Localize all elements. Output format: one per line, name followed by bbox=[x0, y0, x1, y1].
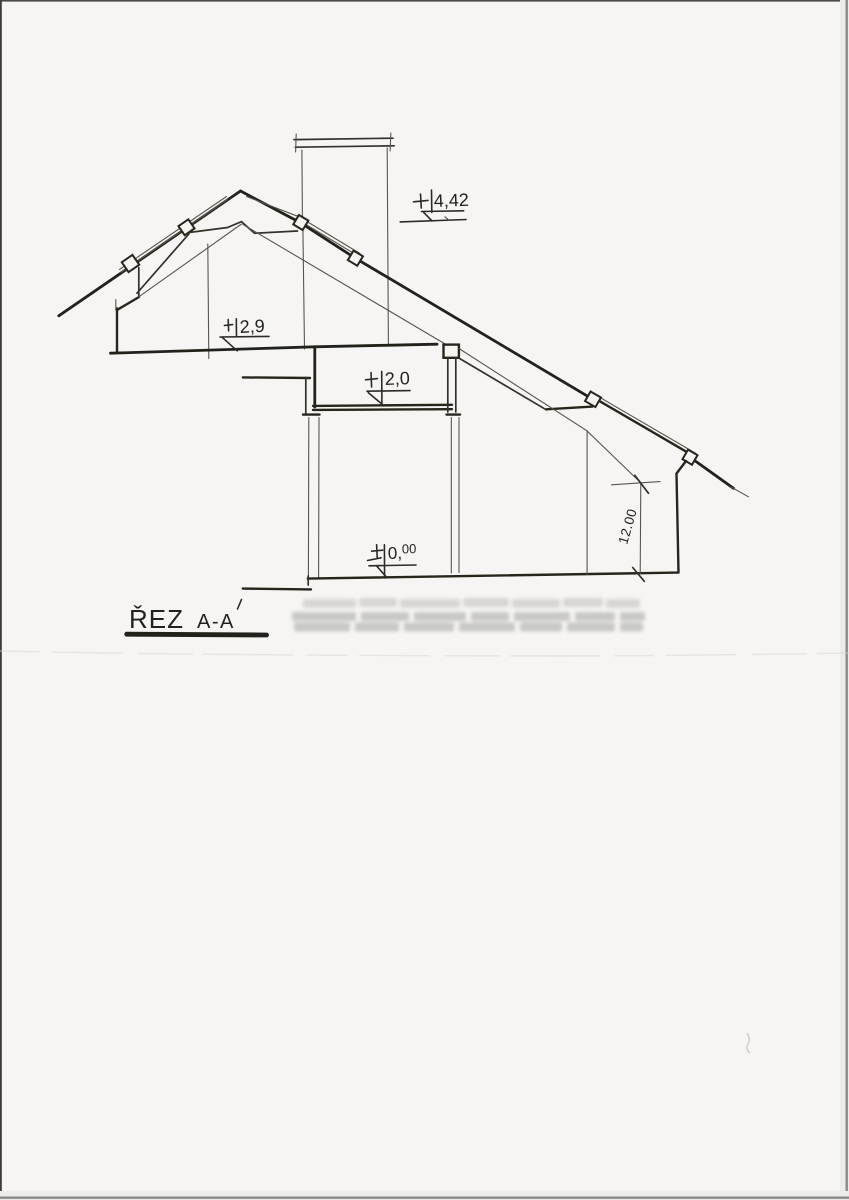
svg-text:2,0: 2,0 bbox=[384, 368, 410, 389]
svg-text:2,9: 2,9 bbox=[239, 316, 265, 337]
svg-text:ŘEZ: ŘEZ bbox=[129, 604, 184, 634]
svg-text:A-A: A-A bbox=[197, 611, 235, 633]
svg-text:4,42: 4,42 bbox=[433, 190, 469, 211]
